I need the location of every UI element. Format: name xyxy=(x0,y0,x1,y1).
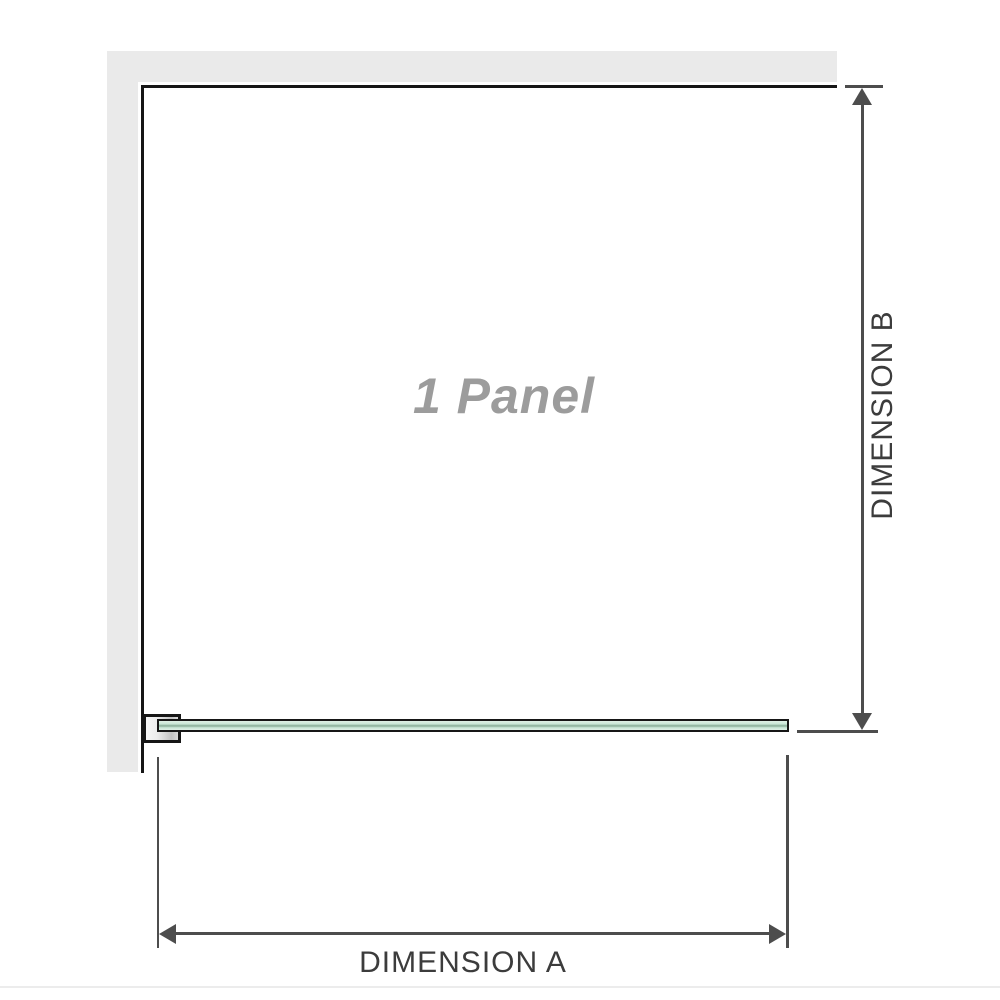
wall-left-strip xyxy=(107,51,138,772)
dimension-a-arrowhead-right-icon xyxy=(769,924,786,944)
glass-panel-bar xyxy=(157,719,789,732)
dimension-a-right-extension-line xyxy=(786,755,789,948)
dimension-b-arrowhead-top-icon xyxy=(852,88,872,105)
panel-count-label: 1 Panel xyxy=(354,371,654,421)
dimension-a-arrowhead-left-icon xyxy=(159,924,176,944)
dimension-a-label: DIMENSION A xyxy=(263,946,663,980)
dimension-b-line xyxy=(861,94,864,722)
shower-panel-dimension-diagram: 1 Panel DIMENSION B DIMENSION A xyxy=(0,0,1000,1000)
dimension-a-line xyxy=(168,932,778,935)
wall-left-edge-line xyxy=(141,85,144,773)
dimension-b-arrowhead-bottom-icon xyxy=(852,713,872,730)
dimension-b-bottom-tick xyxy=(797,730,878,733)
wall-top-strip xyxy=(107,51,837,82)
dimension-b-label: DIMENSION B xyxy=(867,268,899,562)
footer-divider-line xyxy=(0,986,1000,988)
wall-top-edge-line xyxy=(141,85,837,88)
dimension-a-left-extension-line xyxy=(157,757,160,948)
